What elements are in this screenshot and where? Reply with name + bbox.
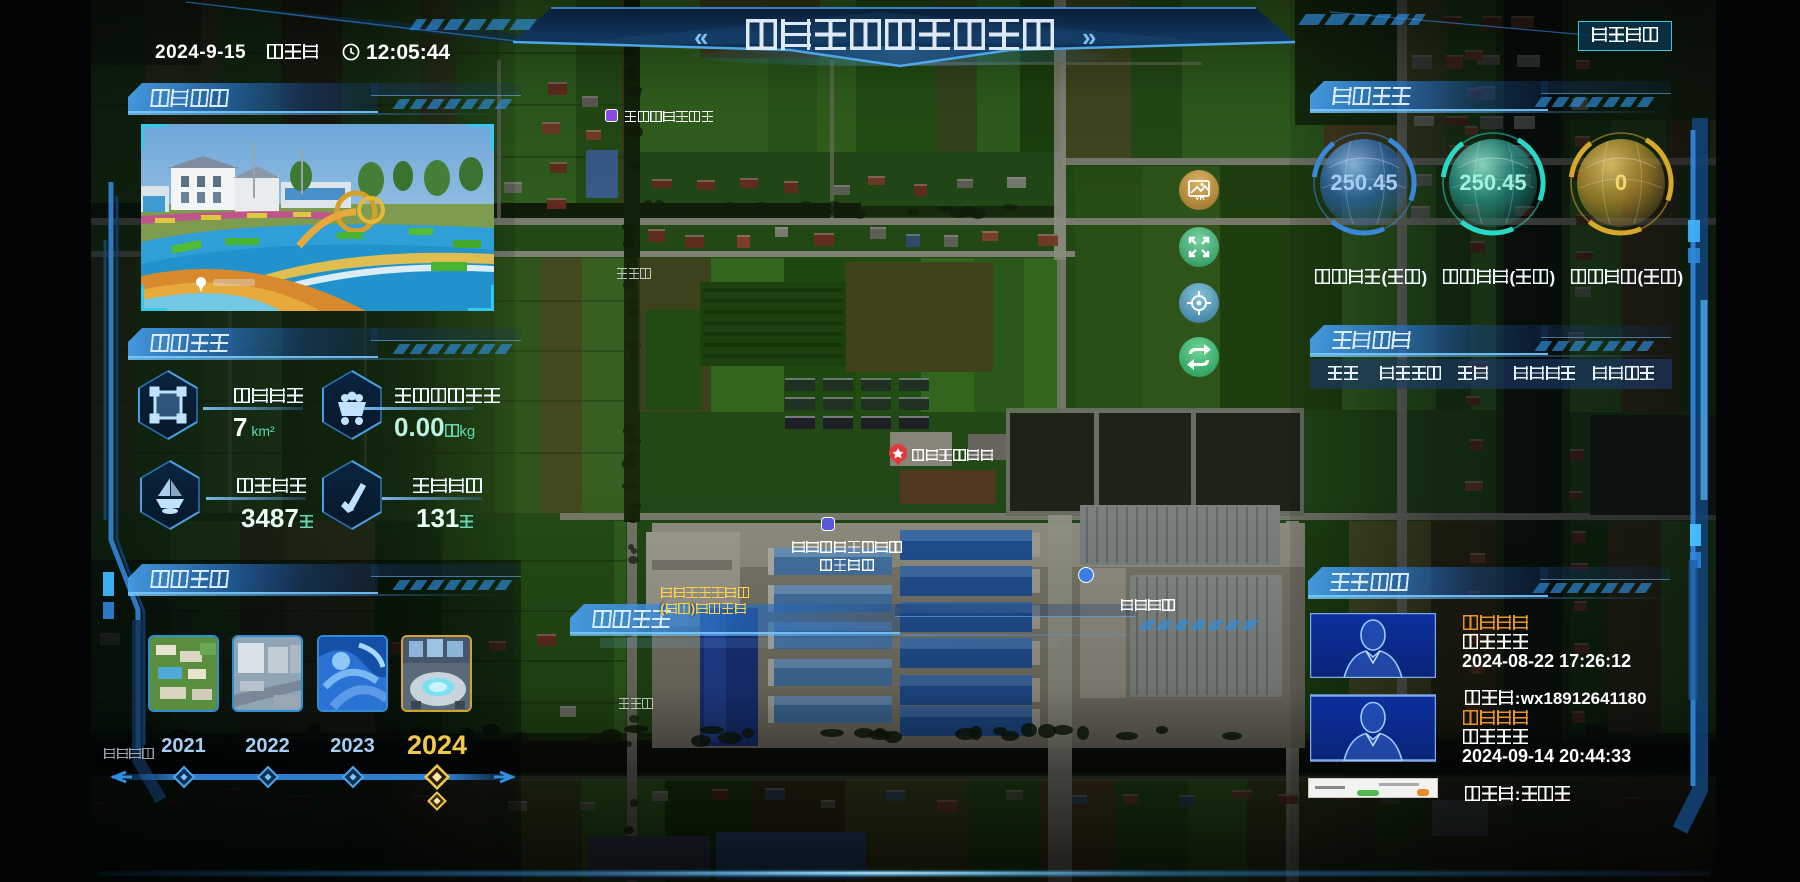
svg-text:VR: VR xyxy=(1195,195,1205,202)
